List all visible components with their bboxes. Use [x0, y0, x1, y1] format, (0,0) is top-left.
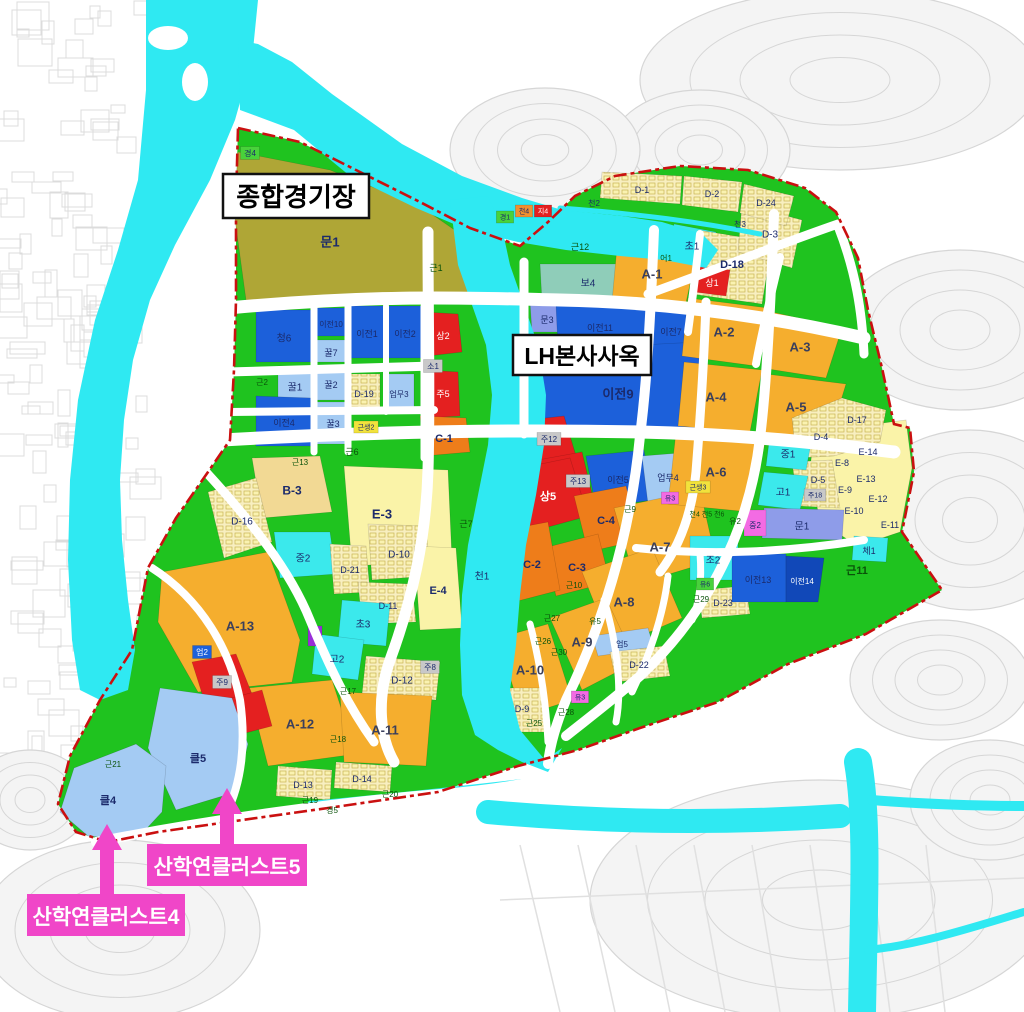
label-유5: 유5 [589, 617, 601, 626]
water-east-channel [858, 762, 865, 1012]
label-지4: 지4 [538, 207, 548, 216]
label-이전7: 이전7 [660, 327, 682, 337]
label-이전10: 이전10 [319, 319, 343, 329]
callout-cluster4-label: 산학연클러스트4 [33, 906, 180, 929]
label-꿀1: 꿀1 [288, 382, 303, 394]
label-근1: 근1 [429, 263, 442, 273]
label-A-11: A-11 [371, 723, 398, 738]
label-E-4: E-4 [429, 585, 447, 597]
label-근29: 근29 [693, 595, 710, 604]
label-고1: 고1 [776, 488, 791, 499]
label-D-18: D-18 [720, 259, 744, 271]
label-중1: 중1 [781, 449, 796, 461]
callout-cluster5-label: 산학연클러스트5 [154, 856, 301, 879]
label-주5: 주5 [436, 389, 449, 399]
label-D-4: D-4 [814, 432, 829, 442]
label-상1: 상1 [705, 278, 718, 288]
label-근13: 근13 [292, 458, 309, 467]
map-canvas: 문1근1경4경1천4지4근12보4천2천3청6이전10이전1이전2꿀7꿀1꿀2상… [0, 0, 1024, 1012]
label-근7: 근7 [459, 519, 472, 529]
label-근17: 근17 [340, 687, 357, 696]
label-유2: 유2 [729, 517, 741, 526]
label-경5: 경5 [326, 805, 338, 815]
label-E-12: E-12 [868, 494, 887, 504]
label-근18: 근18 [330, 735, 347, 744]
label-D-21: D-21 [340, 565, 360, 575]
label-A-2: A-2 [714, 325, 735, 340]
label-근생2: 근생2 [358, 423, 375, 432]
label-조2: 조2 [706, 556, 721, 567]
label-천1: 천1 [475, 571, 490, 583]
landuse-map: 문1근1경4경1천4지4근12보4천2천3청6이전10이전1이전2꿀7꿀1꿀2상… [0, 0, 1024, 1012]
label-이전14: 이전14 [790, 576, 814, 586]
label-근생3: 근생3 [690, 483, 707, 492]
label-E-14: E-14 [858, 447, 877, 457]
label-근25: 근25 [526, 719, 543, 728]
label-근30: 근30 [551, 648, 568, 657]
callout-stadium: 종합경기장 [223, 174, 369, 218]
label-D-9: D-9 [515, 704, 530, 714]
label-업2: 업2 [196, 648, 208, 657]
road [228, 410, 434, 412]
label-어1: 어1 [660, 253, 672, 263]
label-업5: 업5 [616, 640, 628, 649]
label-A-7: A-7 [650, 540, 671, 555]
label-주9: 주9 [216, 678, 228, 687]
label-이전2: 이전2 [394, 329, 416, 339]
label-꿀7: 꿀7 [324, 348, 337, 358]
label-초1: 초1 [685, 241, 700, 253]
label-D-3: D-3 [762, 230, 779, 241]
label-D-10: D-10 [388, 550, 410, 561]
label-주8: 주8 [424, 663, 436, 672]
label-C-3: C-3 [568, 562, 586, 574]
label-근6: 근6 [345, 447, 358, 457]
label-천4: 천4 [519, 207, 529, 216]
label-E-8: E-8 [835, 458, 849, 468]
label-중2: 중2 [296, 553, 311, 565]
label-근12: 근12 [571, 242, 589, 252]
label-주18: 주18 [808, 492, 822, 500]
label-D-12: D-12 [391, 676, 413, 687]
label-문1: 문1 [795, 521, 810, 533]
label-D-1: D-1 [635, 185, 650, 195]
label-체1: 체1 [862, 546, 875, 556]
label-C-4: C-4 [597, 515, 616, 527]
label-근11: 근11 [846, 564, 868, 577]
label-B-3: B-3 [282, 483, 302, 497]
river-island [182, 63, 208, 101]
label-업무3: 업무3 [389, 390, 409, 399]
callout-stadium-label: 종합경기장 [236, 182, 356, 212]
label-근26: 근26 [535, 637, 552, 646]
water-bottom-channel [488, 812, 840, 821]
callout-cluster5: 산학연클러스트5 [147, 844, 307, 886]
callout-lh-label: LH본사사옥 [524, 343, 639, 369]
label-D-2: D-2 [705, 189, 720, 199]
label-E-9: E-9 [838, 485, 852, 495]
label-천3: 천3 [734, 219, 746, 229]
label-근20: 근20 [382, 790, 399, 799]
label-근2: 근2 [256, 378, 268, 387]
label-E-13: E-13 [856, 474, 875, 484]
hill-contour [850, 620, 1024, 740]
label-꿀2: 꿀2 [324, 380, 337, 390]
label-꿀3: 꿀3 [326, 419, 339, 429]
label-근9: 근9 [624, 505, 636, 514]
label-이전11: 이전11 [587, 323, 613, 333]
label-클5: 클5 [190, 752, 206, 765]
label-주13: 주13 [570, 477, 587, 486]
label-상2: 상2 [436, 331, 449, 341]
label-문3: 문3 [540, 315, 553, 325]
label-이전9: 이전9 [602, 387, 633, 402]
label-경4: 경4 [244, 148, 256, 158]
label-E-11: E-11 [881, 520, 899, 530]
label-D-24: D-24 [756, 198, 776, 208]
label-중2: 중2 [749, 521, 761, 530]
label-C-1: C-1 [435, 433, 453, 445]
label-E-3: E-3 [372, 507, 392, 522]
label-업무4: 업무4 [657, 473, 679, 483]
label-이전1: 이전1 [356, 329, 378, 339]
label-청6: 청6 [277, 333, 292, 345]
label-문1: 문1 [320, 235, 339, 250]
water-channel-branch-e [872, 800, 1024, 806]
label-근27: 근27 [544, 614, 561, 623]
label-유3: 유3 [575, 694, 585, 702]
label-근21: 근21 [105, 760, 122, 769]
label-D-23: D-23 [713, 598, 733, 608]
label-D-22: D-22 [629, 660, 649, 670]
label-A-12: A-12 [286, 717, 314, 732]
label-D-17: D-17 [847, 415, 867, 425]
label-D-19: D-19 [354, 389, 374, 399]
label-주12: 주12 [541, 435, 558, 444]
label-이전13: 이전13 [745, 575, 772, 585]
label-A-8: A-8 [614, 595, 635, 610]
label-A-6: A-6 [706, 465, 727, 480]
label-A-4: A-4 [706, 390, 728, 405]
callout-lh: LH본사사옥 [513, 335, 651, 375]
label-보4: 보4 [581, 278, 596, 290]
label-클4: 클4 [100, 794, 117, 807]
label-D-5: D-5 [811, 475, 826, 485]
label-D-11: D-11 [379, 601, 398, 611]
label-A-1: A-1 [642, 267, 663, 282]
label-A-9: A-9 [572, 635, 593, 650]
callout-cluster4: 산학연클러스트4 [27, 894, 185, 936]
road [228, 366, 434, 372]
label-A-10: A-10 [516, 663, 544, 678]
river-island [148, 26, 188, 50]
label-근28: 근28 [558, 708, 575, 717]
label-천4 천5 천6: 천4 천5 천6 [690, 510, 725, 519]
label-상5: 상5 [540, 489, 556, 503]
label-A-5: A-5 [786, 400, 807, 415]
label-D-14: D-14 [352, 774, 372, 784]
label-A-3: A-3 [790, 340, 811, 355]
label-C-2: C-2 [523, 559, 541, 571]
label-E-10: E-10 [844, 506, 863, 516]
label-경1: 경1 [500, 213, 510, 222]
label-D-16: D-16 [231, 517, 253, 528]
label-이전4: 이전4 [273, 418, 295, 428]
label-유3: 유3 [665, 495, 675, 503]
label-근19: 근19 [302, 796, 319, 805]
label-소1: 소1 [427, 362, 439, 371]
label-이전5: 이전5 [607, 475, 629, 485]
label-A-13: A-13 [226, 619, 254, 634]
label-초3: 초3 [356, 619, 371, 631]
label-근10: 근10 [566, 581, 583, 590]
label-고2: 고2 [330, 655, 345, 666]
label-유6: 유6 [700, 581, 710, 589]
label-천2: 천2 [588, 198, 600, 208]
label-D-13: D-13 [293, 780, 313, 790]
